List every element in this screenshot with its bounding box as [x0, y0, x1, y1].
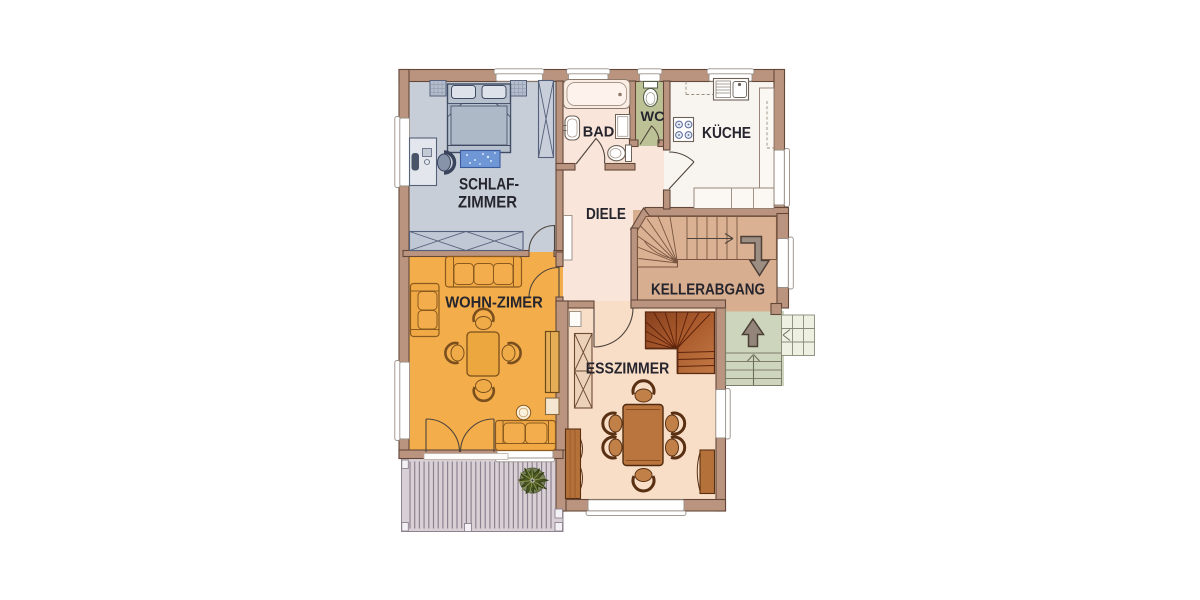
svg-text:WOHN-ZIMER: WOHN-ZIMER [445, 295, 543, 312]
svg-text:KELLERABGANG: KELLERABGANG [651, 282, 765, 299]
svg-text:DIELE: DIELE [586, 206, 626, 223]
svg-text:KÜCHE: KÜCHE [702, 123, 751, 142]
svg-text:SCHLAF-: SCHLAF- [459, 176, 519, 194]
svg-text:ESSZIMMER: ESSZIMMER [586, 361, 670, 378]
svg-text:BAD: BAD [583, 124, 615, 141]
svg-text:WC: WC [641, 109, 665, 124]
svg-text:ZIMMER: ZIMMER [458, 194, 517, 212]
